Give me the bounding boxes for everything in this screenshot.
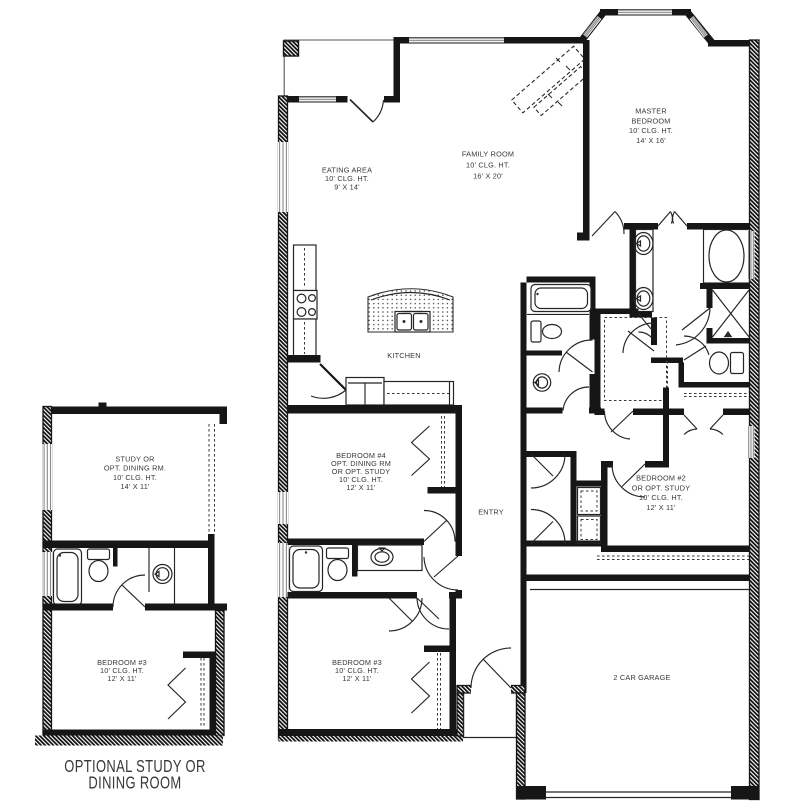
svg-text:14' X 16': 14' X 16' (636, 136, 666, 145)
svg-text:FAMILY ROOM: FAMILY ROOM (462, 150, 514, 159)
svg-text:OR OPT. STUDY: OR OPT. STUDY (632, 483, 691, 492)
svg-text:MASTER: MASTER (635, 107, 667, 116)
svg-text:12' X 11': 12' X 11' (646, 503, 676, 512)
svg-text:STUDY OR: STUDY OR (115, 455, 154, 464)
svg-text:KITCHEN: KITCHEN (387, 351, 420, 360)
svg-text:12' X 11': 12' X 11' (346, 483, 376, 492)
svg-text:10' CLG. HT.: 10' CLG. HT. (113, 473, 157, 482)
svg-text:DINING ROOM: DINING ROOM (88, 774, 181, 794)
svg-text:10' CLG. HT.: 10' CLG. HT. (466, 161, 510, 170)
svg-text:ENTRY: ENTRY (478, 508, 504, 517)
svg-text:BEDROOM #2: BEDROOM #2 (636, 474, 686, 483)
svg-text:10' CLG. HT.: 10' CLG. HT. (639, 493, 683, 502)
svg-text:2 CAR GARAGE: 2 CAR GARAGE (613, 673, 670, 682)
svg-text:OPT. DINING RM.: OPT. DINING RM. (104, 464, 166, 473)
svg-text:16' X 20': 16' X 20' (473, 172, 503, 181)
svg-text:9' X 14': 9' X 14' (334, 183, 360, 192)
svg-text:12' X 11': 12' X 11' (342, 674, 372, 683)
svg-text:10' CLG. HT.: 10' CLG. HT. (629, 126, 673, 135)
svg-text:12' X 11': 12' X 11' (107, 674, 137, 683)
svg-text:14' X 11': 14' X 11' (120, 482, 150, 491)
svg-text:BEDROOM: BEDROOM (631, 116, 670, 125)
